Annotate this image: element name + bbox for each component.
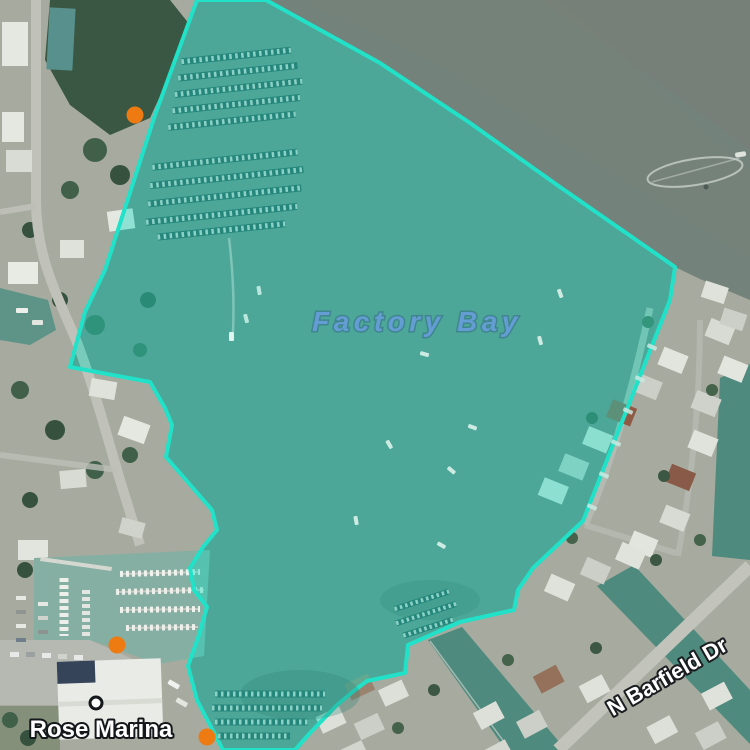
orange-marker[interactable] [109,637,126,654]
water-label: Factory Bay [312,306,522,337]
white-dot-marker[interactable] [90,697,102,709]
place-label: Rose Marina [30,716,173,743]
satellite-map[interactable]: Factory Bay Rose Marina N Barfield Dr [0,0,750,750]
orange-marker[interactable] [127,107,144,124]
map-canvas[interactable]: Factory Bay Rose Marina N Barfield Dr [0,0,750,750]
orange-marker[interactable] [199,729,216,746]
